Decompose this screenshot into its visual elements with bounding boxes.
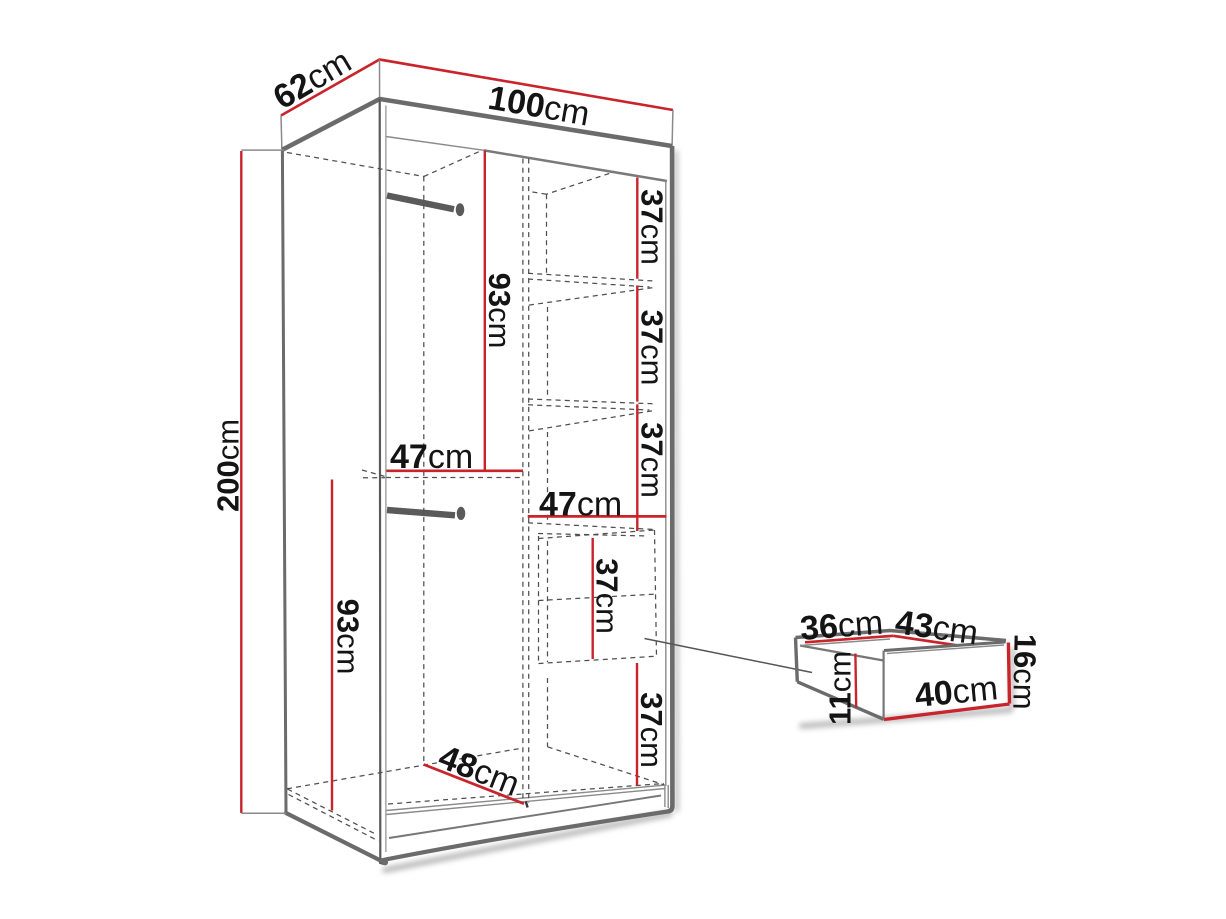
svg-text:48cm: 48cm <box>433 738 524 804</box>
svg-text:37cm: 37cm <box>635 189 670 265</box>
svg-text:93cm: 93cm <box>482 273 517 349</box>
svg-text:37cm: 37cm <box>590 558 625 634</box>
svg-text:11cm: 11cm <box>823 651 858 725</box>
svg-text:16cm: 16cm <box>1006 633 1042 709</box>
svg-text:62cm: 62cm <box>267 42 358 117</box>
svg-text:43cm: 43cm <box>893 603 981 652</box>
svg-text:47cm: 47cm <box>539 486 622 524</box>
svg-text:37cm: 37cm <box>635 310 670 386</box>
svg-text:100cm: 100cm <box>485 79 592 134</box>
svg-text:200cm: 200cm <box>211 419 246 512</box>
svg-text:47cm: 47cm <box>390 438 473 476</box>
svg-text:37cm: 37cm <box>634 692 669 768</box>
svg-text:40cm: 40cm <box>913 669 999 715</box>
svg-text:37cm: 37cm <box>635 422 670 498</box>
svg-text:36cm: 36cm <box>799 604 885 648</box>
svg-text:93cm: 93cm <box>331 599 366 675</box>
